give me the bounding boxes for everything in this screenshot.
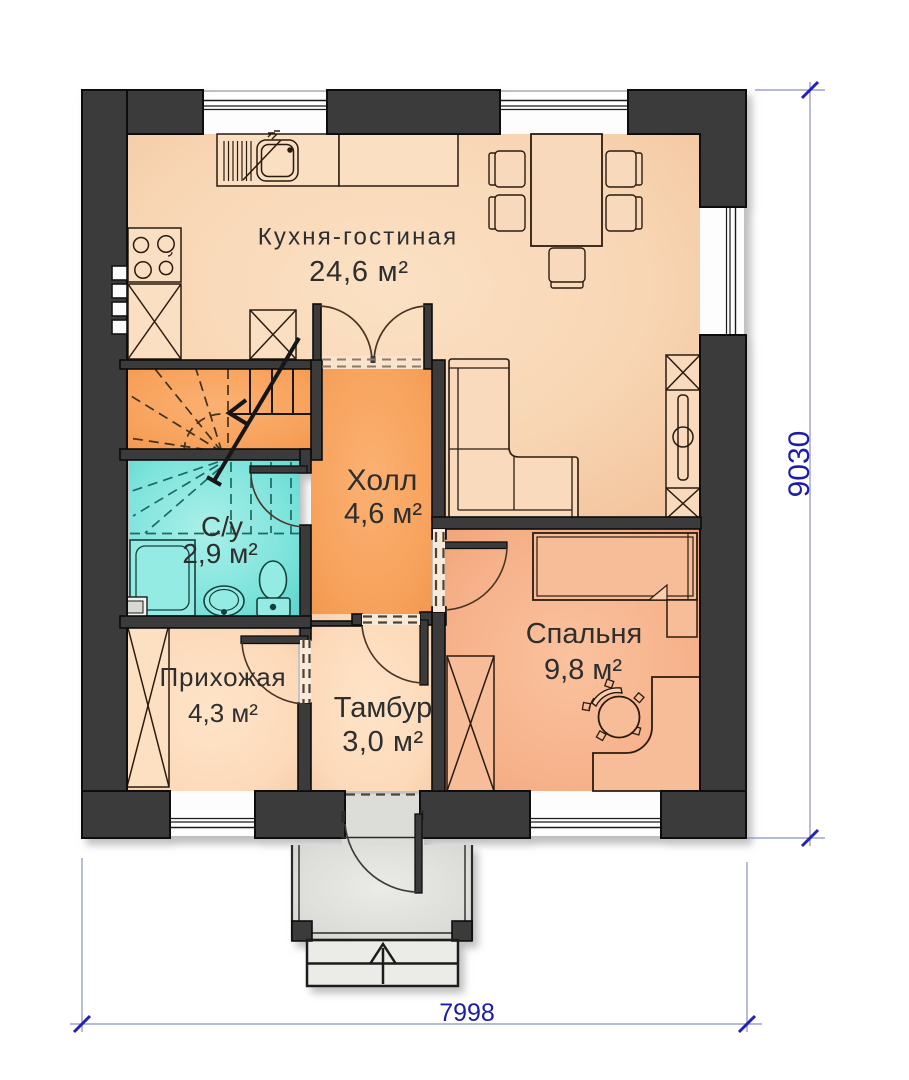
svg-text:3,0 м²: 3,0 м²	[342, 726, 424, 758]
svg-text:4,6 м²: 4,6 м²	[344, 498, 422, 530]
svg-text:Холл: Холл	[347, 464, 418, 497]
svg-text:4,3 м²: 4,3 м²	[188, 698, 258, 728]
svg-text:Спальня: Спальня	[526, 618, 643, 650]
svg-text:24,6 м²: 24,6 м²	[309, 256, 409, 288]
svg-text:2,9 м²: 2,9 м²	[182, 538, 257, 569]
svg-text:9030: 9030	[783, 431, 816, 498]
svg-text:7998: 7998	[439, 999, 495, 1027]
svg-text:Прихожая: Прихожая	[160, 662, 287, 692]
svg-text:Кухня-гостиная: Кухня-гостиная	[258, 224, 459, 251]
svg-text:Тамбур: Тамбур	[334, 692, 432, 724]
svg-text:9,8 м²: 9,8 м²	[544, 654, 622, 686]
